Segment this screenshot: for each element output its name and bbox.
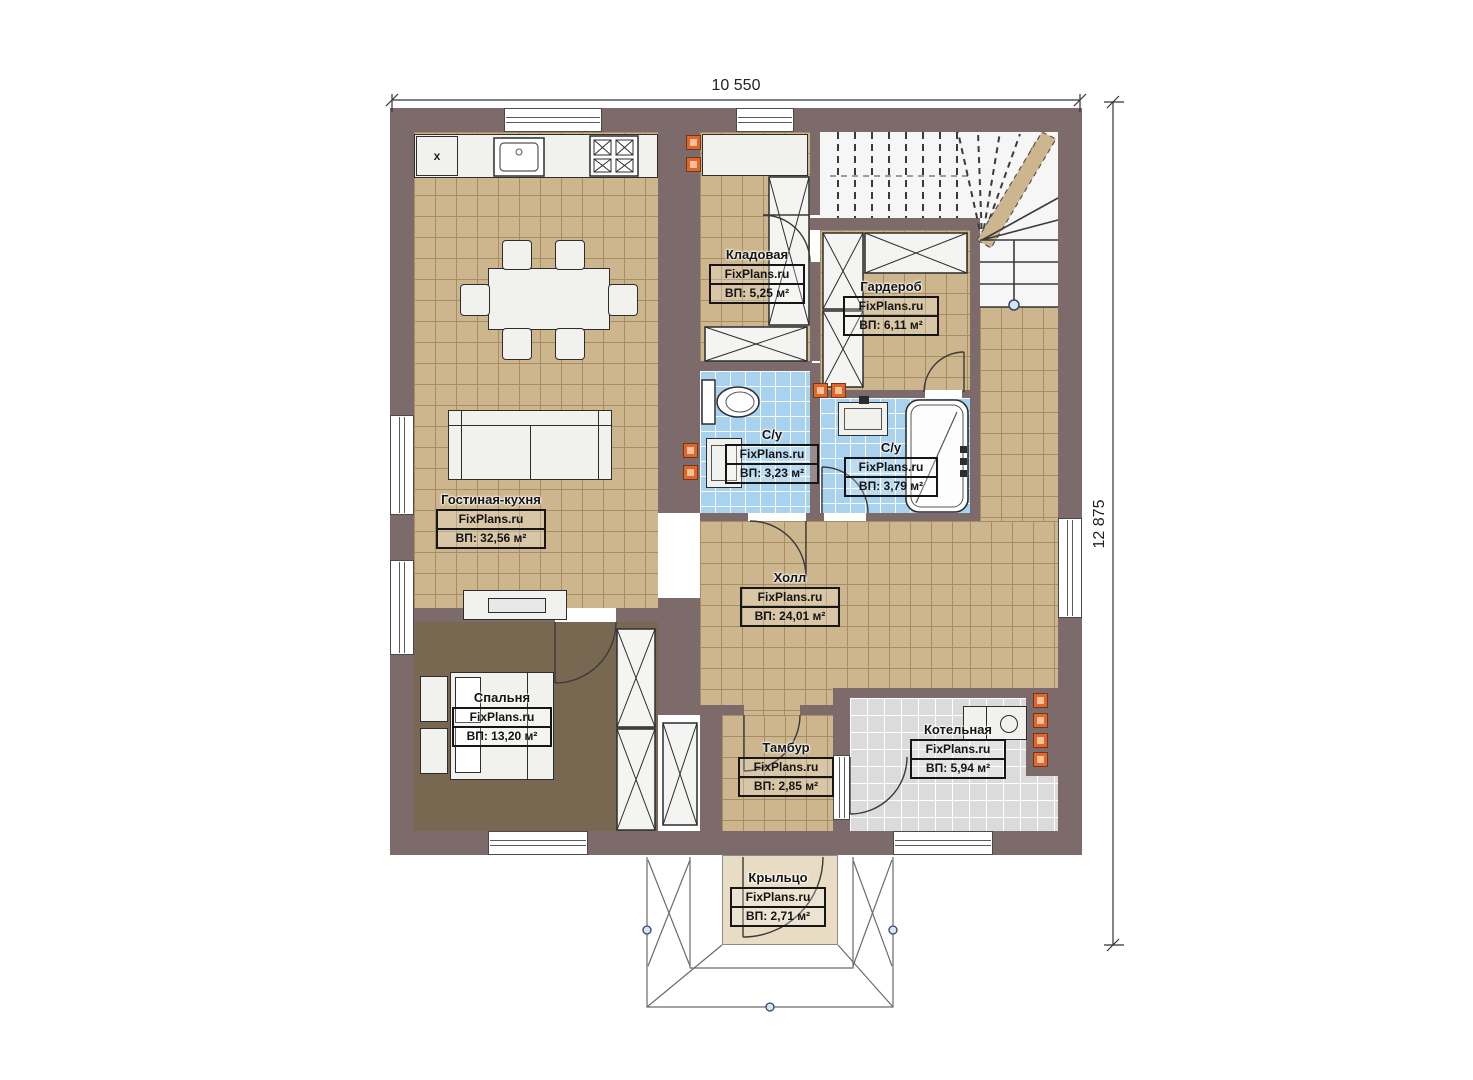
room-area: ВП: 13,20 м² [454, 726, 550, 745]
room-info-box: FixPlans.ru ВП: 3,23 м² [725, 444, 819, 484]
room-label-storage: Кладовая FixPlans.ru ВП: 5,25 м² [703, 247, 811, 304]
room-label-bath2: С/у FixPlans.ru ВП: 3,79 м² [842, 440, 940, 497]
vent-marker [684, 444, 697, 457]
vent-marker [687, 136, 700, 149]
tv [488, 598, 546, 613]
window-left-sofa [390, 560, 414, 655]
wall-exterior-right [1058, 108, 1082, 855]
watermark: FixPlans.ru [845, 298, 937, 315]
wall-bath-bottom-c [866, 513, 980, 521]
wall-tambour-left [700, 705, 722, 831]
room-label-wardrobe: Гардероб FixPlans.ru ВП: 6,11 м² [836, 279, 946, 336]
room-label-bath1: С/у FixPlans.ru ВП: 3,23 м² [724, 427, 820, 484]
watermark: FixPlans.ru [912, 741, 1004, 758]
porch-marker-right [889, 926, 897, 934]
room-label-hall: Холл FixPlans.ru ВП: 24,01 м² [740, 570, 840, 627]
bath2-faucet [859, 396, 869, 404]
room-name: Гардероб [836, 279, 946, 294]
wall-bath-bottom-b [806, 513, 824, 521]
wall-tambour-right-b [833, 820, 850, 831]
room-info-box: FixPlans.ru ВП: 5,25 м² [709, 264, 805, 304]
nightstand-2 [420, 728, 448, 774]
window-bottom-boiler [893, 831, 993, 855]
room-area: ВП: 32,56 м² [438, 528, 544, 547]
watermark: FixPlans.ru [740, 759, 832, 776]
vent-marker [832, 384, 845, 397]
hall-floor-right-upper [980, 307, 1058, 521]
wall-bath-bottom-a [700, 513, 748, 521]
storage-cabinet-bottom [704, 326, 808, 362]
room-area: ВП: 6,11 м² [845, 315, 937, 334]
vent-marker [1034, 753, 1047, 766]
bedroom-wardrobe-b [616, 728, 656, 831]
room-info-box: FixPlans.ru ВП: 5,94 м² [910, 739, 1006, 779]
sofa-seat-divider [530, 425, 531, 479]
chair-bottom-2 [555, 328, 585, 360]
dining-table [488, 268, 610, 330]
chair-top-2 [555, 240, 585, 270]
room-info-box: FixPlans.ru ВП: 32,56 м² [436, 509, 546, 549]
vent-marker [1034, 734, 1047, 747]
vent-marker [1034, 714, 1047, 727]
room-info-box: FixPlans.ru ВП: 6,11 м² [843, 296, 939, 336]
vent-marker [684, 466, 697, 479]
wall-storage-right-b [810, 262, 820, 361]
room-info-box: FixPlans.ru ВП: 3,79 м² [844, 457, 938, 497]
nightstand-1 [420, 676, 448, 722]
room-label-tambour: Тамбур FixPlans.ru ВП: 2,85 м² [738, 740, 834, 797]
vent-marker [814, 384, 827, 397]
vent-marker [1034, 694, 1047, 707]
room-label-living: Гостиная-кухня FixPlans.ru ВП: 32,56 м² [435, 492, 547, 549]
room-name: Спальня [452, 690, 552, 705]
bedroom-wardrobe-a [616, 628, 656, 728]
room-info-box: FixPlans.ru ВП: 2,71 м² [730, 887, 826, 927]
room-name: Холл [740, 570, 840, 585]
room-name: С/у [724, 427, 820, 442]
room-label-bedroom: Спальня FixPlans.ru ВП: 13,20 м² [452, 690, 552, 747]
watermark: FixPlans.ru [742, 589, 838, 606]
room-info-box: FixPlans.ru ВП: 13,20 м² [452, 707, 552, 747]
watermark: FixPlans.ru [846, 459, 936, 476]
chair-top-1 [502, 240, 532, 270]
watermark: FixPlans.ru [732, 889, 824, 906]
window-left-dining [390, 415, 414, 515]
room-label-porch: Крыльцо FixPlans.ru ВП: 2,71 м² [728, 870, 828, 927]
room-info-box: FixPlans.ru ВП: 2,85 м² [738, 757, 834, 797]
room-area: ВП: 24,01 м² [742, 606, 838, 625]
room-name: С/у [842, 440, 940, 455]
room-name: Тамбур [738, 740, 834, 755]
wall-storage-right-a [810, 132, 820, 215]
sofa-arm-left [449, 411, 462, 479]
door-gap-boiler [833, 755, 850, 820]
wardrobe-cabinet-top [864, 232, 968, 274]
fridge-mark: x [434, 149, 441, 163]
room-area: ВП: 3,23 м² [727, 463, 817, 482]
wall-wardrobe-bottom-b [962, 390, 980, 398]
room-area: ВП: 5,94 м² [912, 758, 1004, 777]
room-area: ВП: 5,25 м² [711, 283, 803, 302]
porch-marker-left [643, 926, 651, 934]
storage-top-cabinet [702, 134, 808, 176]
window-bottom-bedroom [488, 831, 588, 855]
wall-bedroom-top-right [616, 608, 658, 622]
chair-left [460, 284, 490, 316]
chair-bottom-1 [502, 328, 532, 360]
dimension-width-label: 10 550 [712, 77, 761, 94]
porch-marker-bottom [766, 1003, 774, 1011]
window-top-kitchen [504, 108, 602, 132]
sofa [448, 410, 612, 480]
stairs-lower-area [980, 132, 1058, 307]
floor-plan-canvas: x [0, 0, 1473, 1080]
room-area: ВП: 2,71 м² [732, 906, 824, 925]
wall-stairs-bottom [810, 218, 970, 230]
window-top-hall [736, 108, 794, 132]
fridge: x [416, 136, 458, 176]
room-area: ВП: 3,79 м² [846, 476, 936, 495]
chair-right [608, 284, 638, 316]
watermark: FixPlans.ru [454, 709, 550, 726]
room-name: Кладовая [703, 247, 811, 262]
hall-floor-right-lower [970, 521, 1058, 688]
dimension-height-label: 12 875 [1091, 499, 1108, 548]
wall-tambour-top-a [722, 705, 744, 715]
room-name: Крыльцо [728, 870, 828, 885]
wall-stairs-left [970, 218, 980, 513]
wall-living-right-lower [658, 598, 700, 715]
window-right-hall [1058, 518, 1082, 618]
vent-marker [687, 158, 700, 171]
wall-tambour-top-b [800, 705, 833, 715]
hall-corner-cabinet [662, 722, 698, 826]
sofa-back [449, 411, 611, 426]
room-label-boiler: Котельная FixPlans.ru ВП: 5,94 м² [903, 722, 1013, 779]
sofa-arm-right [598, 411, 611, 479]
wall-tambour-right-a [833, 688, 850, 755]
watermark: FixPlans.ru [727, 446, 817, 463]
watermark: FixPlans.ru [438, 511, 544, 528]
room-info-box: FixPlans.ru ВП: 24,01 м² [740, 587, 840, 627]
room-area: ВП: 2,85 м² [740, 776, 832, 795]
wall-storage-bottom [700, 361, 812, 371]
tv-stand [463, 590, 567, 620]
room-name: Гостиная-кухня [435, 492, 547, 507]
watermark: FixPlans.ru [711, 266, 803, 283]
bath2-sink [838, 402, 888, 436]
room-name: Котельная [903, 722, 1013, 737]
bath2-sink-basin [844, 408, 882, 430]
